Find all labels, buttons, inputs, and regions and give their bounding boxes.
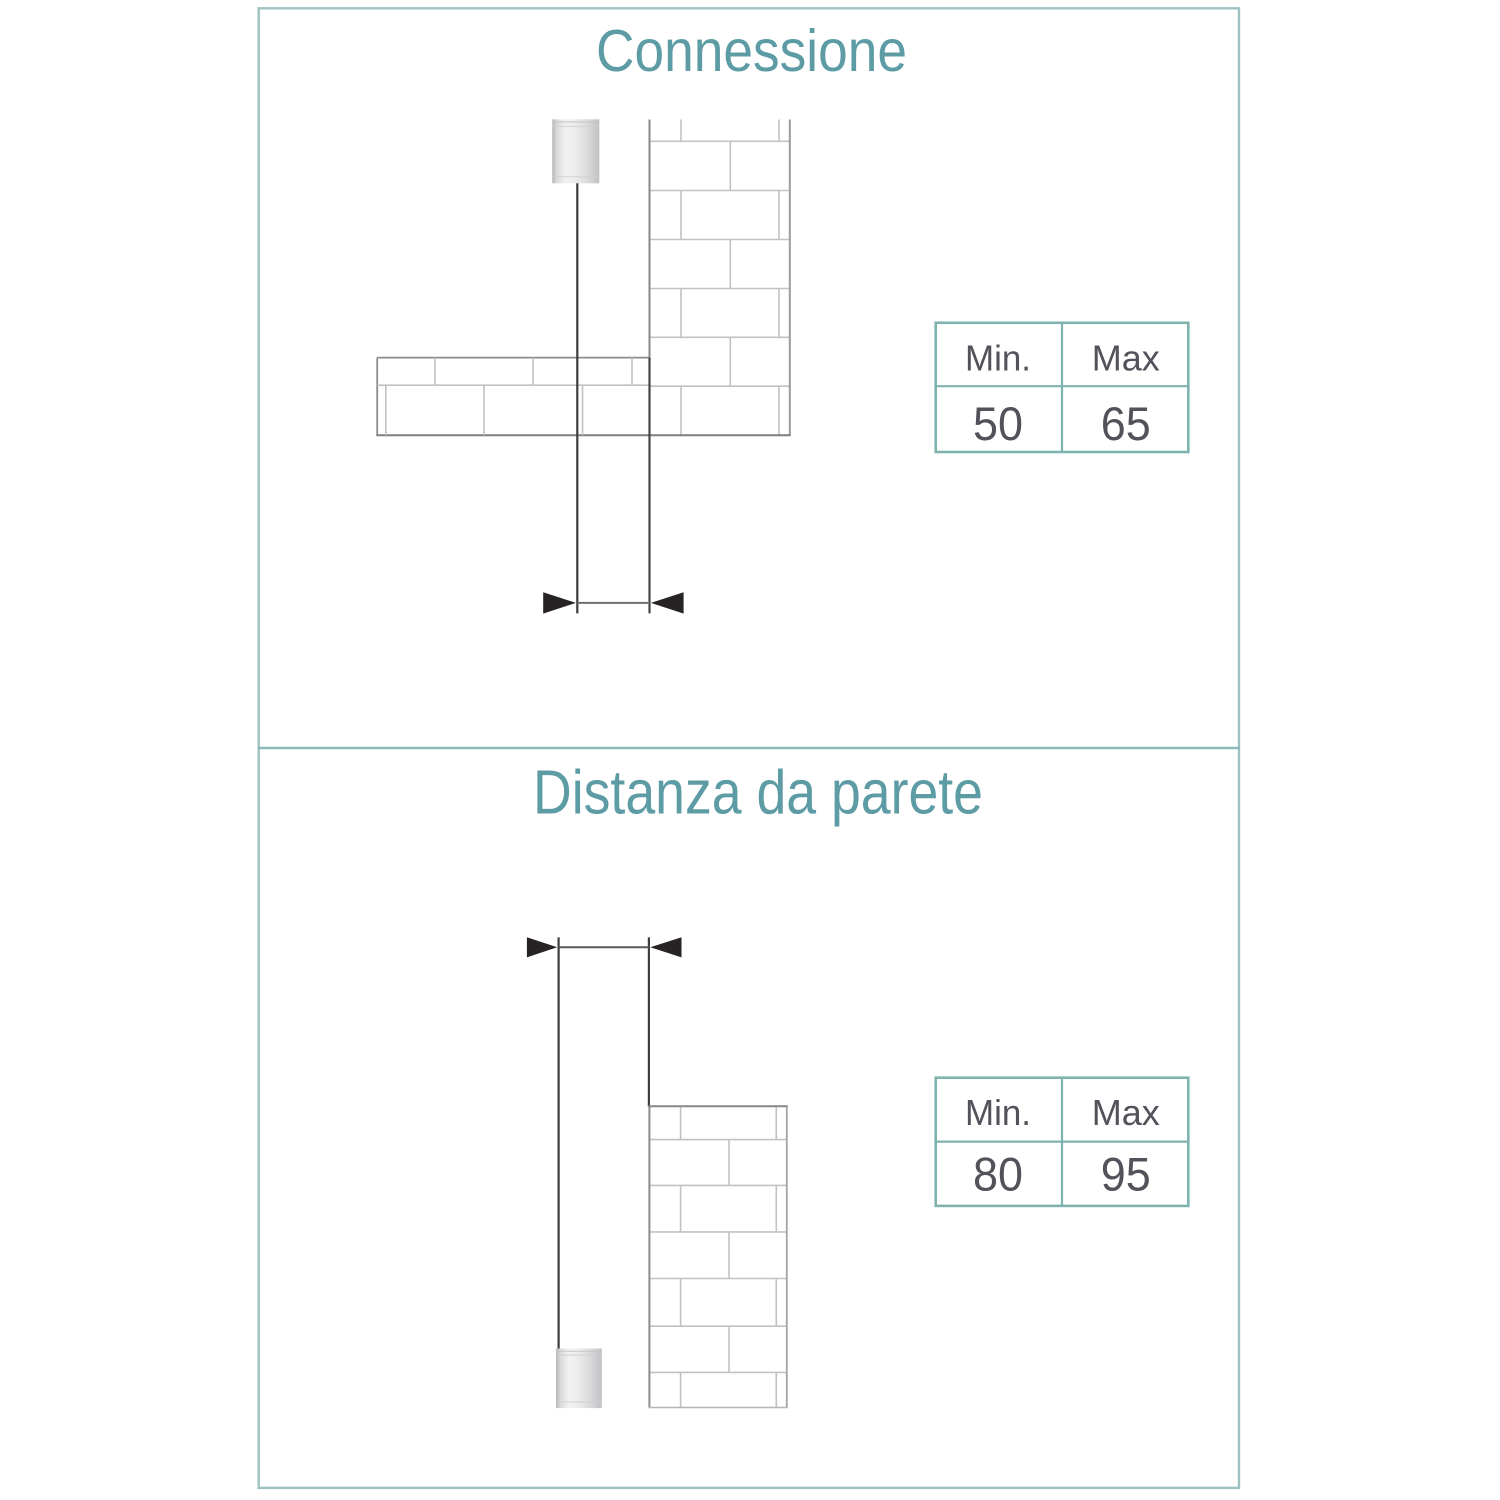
- svg-text:Min.: Min.: [965, 338, 1031, 379]
- svg-text:Min.: Min.: [965, 1092, 1031, 1133]
- svg-text:Distanza da parete: Distanza da parete: [533, 759, 983, 828]
- svg-text:95: 95: [1101, 1147, 1151, 1200]
- svg-text:Connessione: Connessione: [596, 18, 907, 84]
- svg-text:65: 65: [1101, 397, 1151, 450]
- svg-text:80: 80: [973, 1147, 1023, 1200]
- svg-text:50: 50: [973, 397, 1023, 450]
- svg-text:Max: Max: [1092, 338, 1160, 379]
- svg-text:Max: Max: [1092, 1092, 1160, 1133]
